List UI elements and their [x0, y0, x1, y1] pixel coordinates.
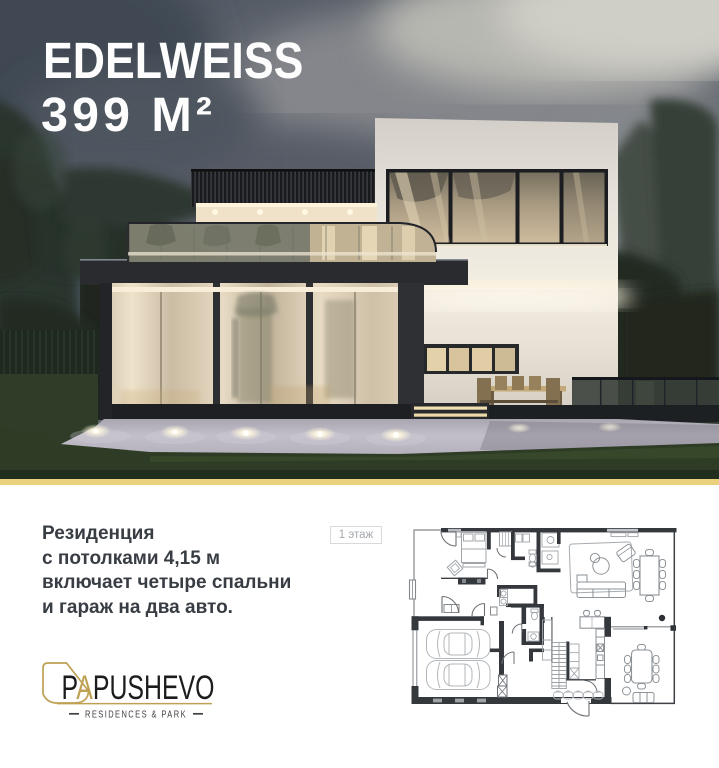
svg-text:PAPUSHEVO: PAPUSHEVO	[62, 669, 215, 707]
svg-text:RESIDENCES & PARK: RESIDENCES & PARK	[85, 709, 187, 721]
